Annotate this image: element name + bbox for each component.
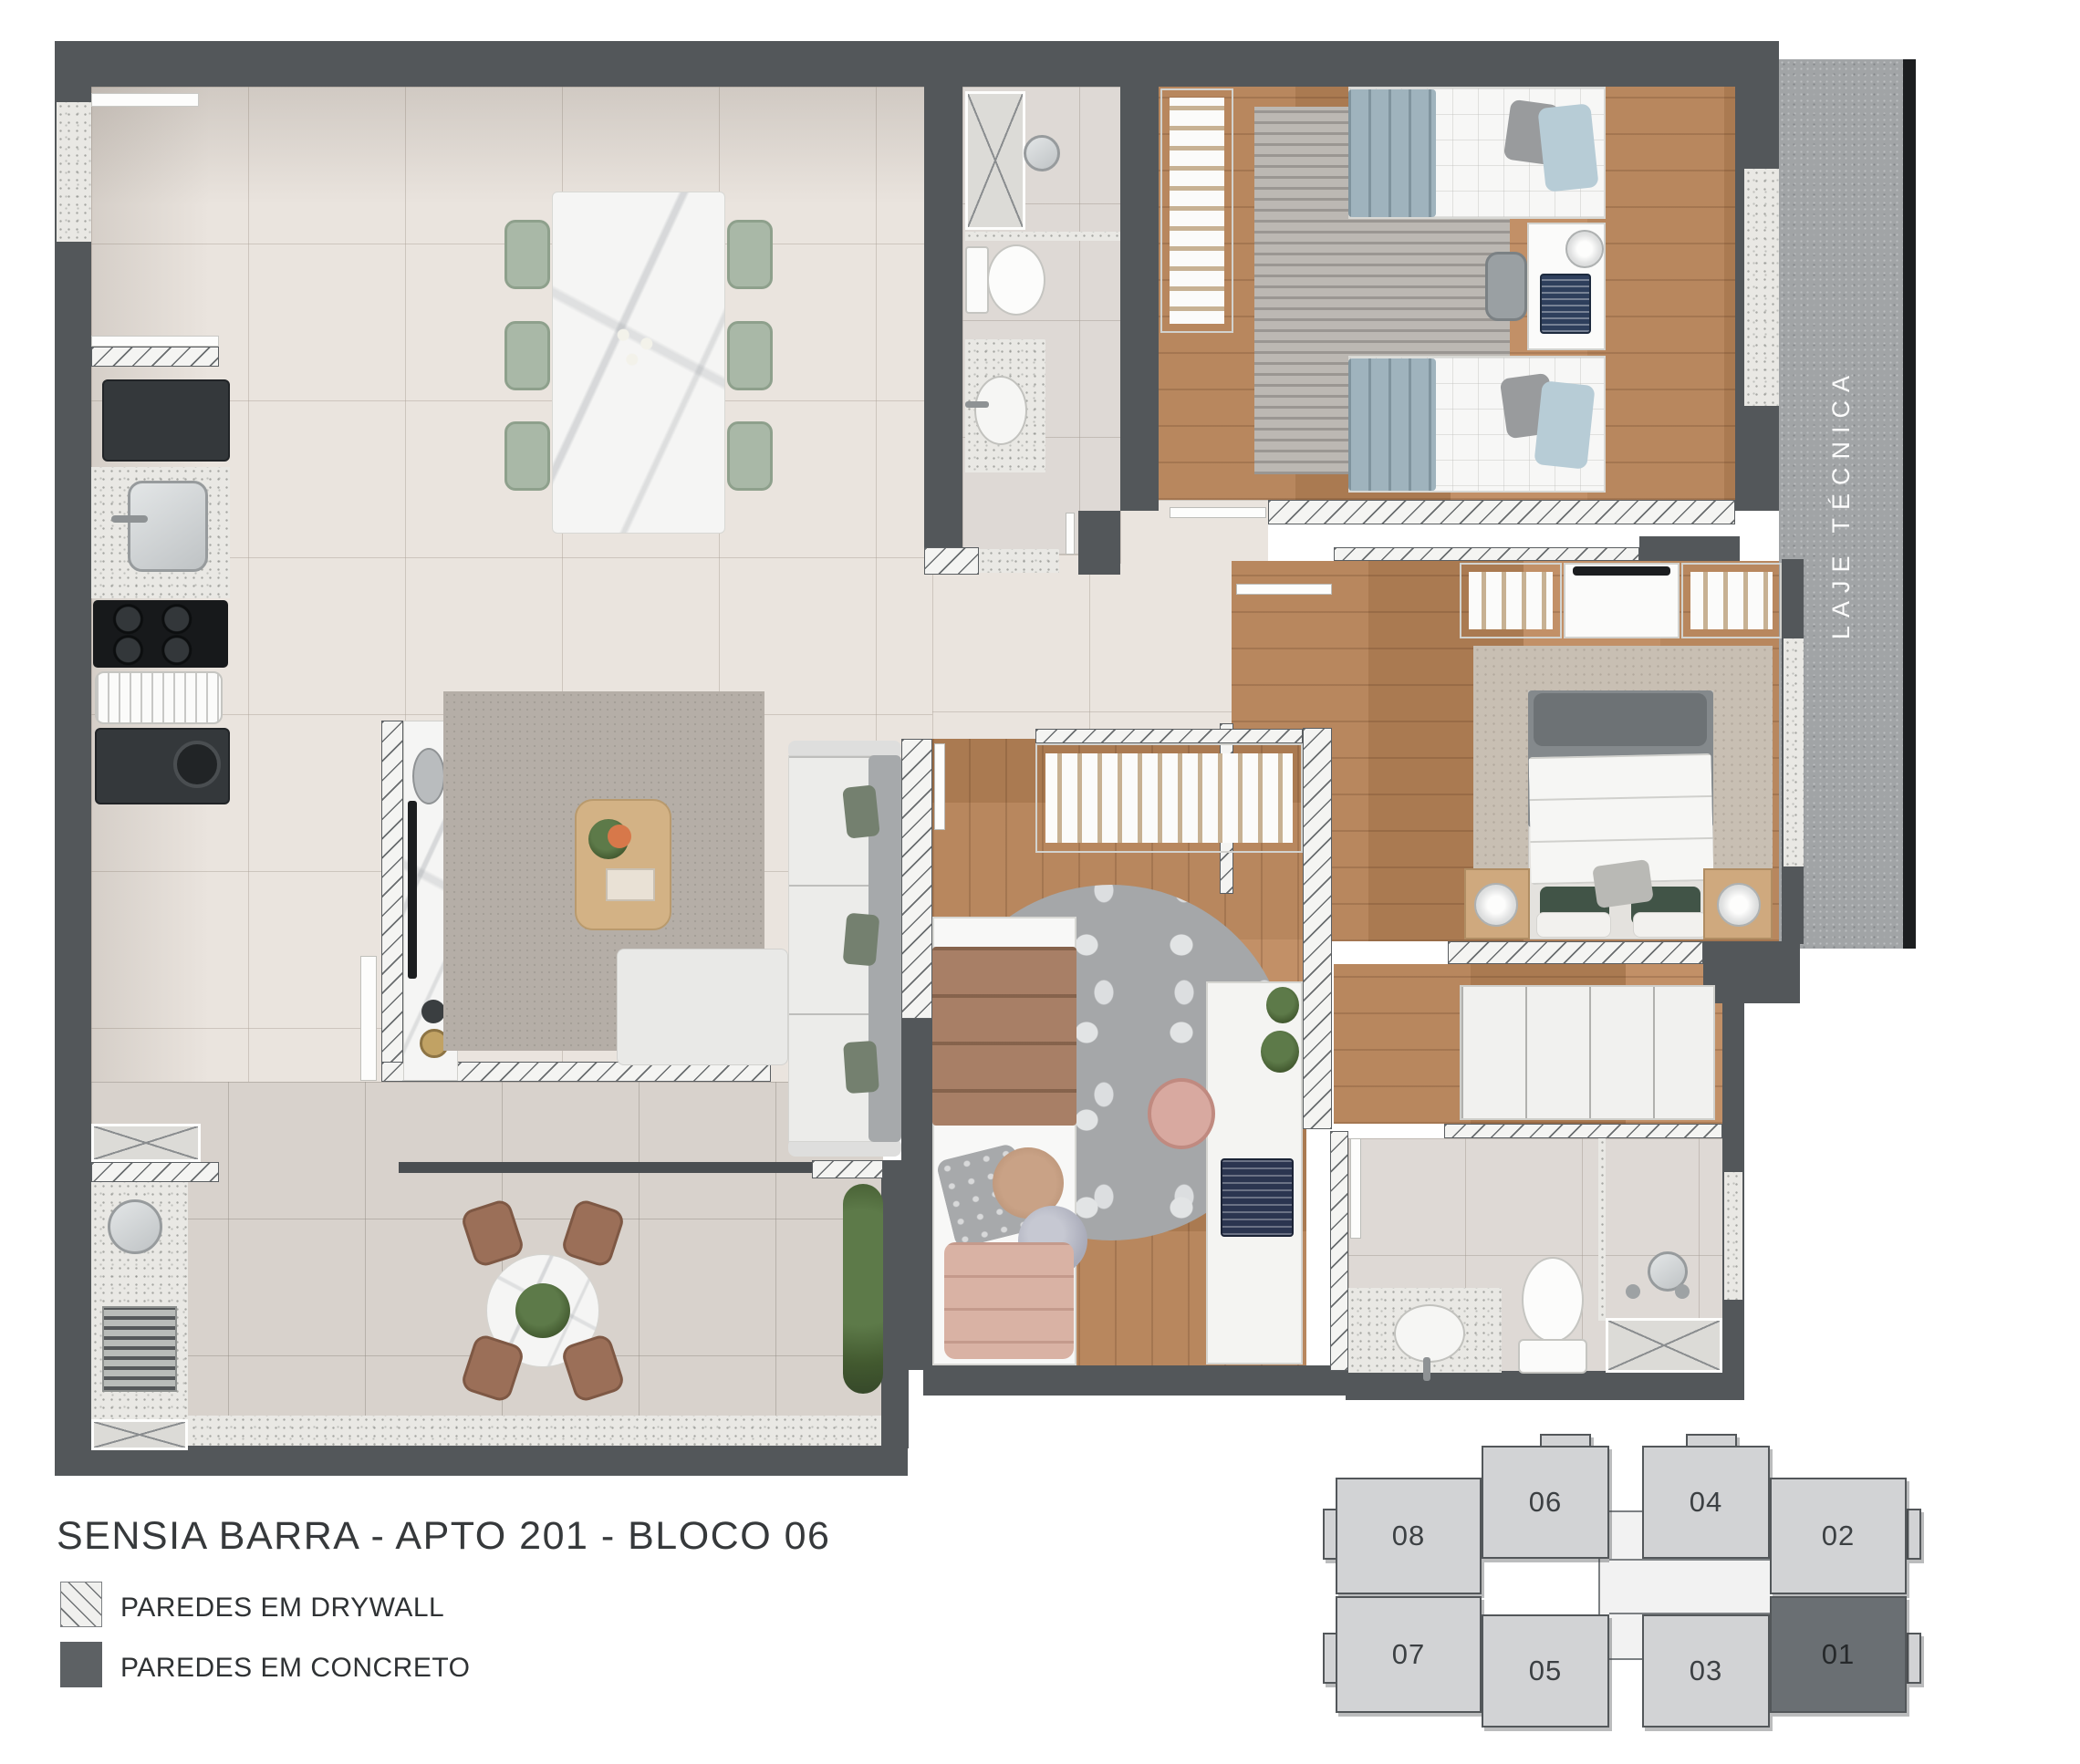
- keyplan-unit-08: 08: [1336, 1478, 1482, 1594]
- keyplan-unit-label: 07: [1392, 1638, 1425, 1671]
- bathroom1-door-leaf: [1066, 513, 1075, 555]
- kitchen-sink: [128, 481, 208, 572]
- wall-bathroom1-right: [1120, 87, 1159, 511]
- sofa-pillow: [843, 1041, 879, 1094]
- drywall-master-top: [1334, 547, 1639, 561]
- bedroom2-door-leaf: [1170, 507, 1266, 518]
- keyplan-unit-label: 08: [1392, 1520, 1425, 1552]
- wall-bathroom1-left: [924, 87, 962, 547]
- twin-bed-1-blanket: [1348, 89, 1436, 217]
- wall-bathroom2-bottom: [1346, 1371, 1744, 1400]
- dining-chair: [727, 321, 773, 390]
- dining-chair: [727, 220, 773, 289]
- kitchen-shelf: [91, 93, 199, 107]
- bathroom2-door-leaf: [1350, 1138, 1361, 1239]
- keyplan-unit-02: 02: [1770, 1478, 1907, 1594]
- toilet: [1522, 1257, 1584, 1343]
- gourmet-sink: [108, 1199, 162, 1254]
- drywall-master-bottom: [1448, 941, 1703, 964]
- dining-chair: [727, 421, 773, 491]
- coffee-table: [575, 799, 671, 930]
- coffee-table-flower: [608, 825, 631, 848]
- keyplan-unit-label: 02: [1822, 1520, 1855, 1552]
- floor-plan-canvas: LAJE TÉCNICA: [0, 0, 2080, 1764]
- kitchen-halfwall-cap: [91, 336, 219, 347]
- laje-tecnica-label: LAJE TÉCNICA: [1827, 368, 1856, 639]
- washer-door: [173, 741, 221, 788]
- laptop: [1540, 274, 1591, 334]
- keyplan-unit-03: 03: [1642, 1614, 1770, 1728]
- drywall-tv-wall: [381, 721, 403, 1081]
- legend-concrete-label: PAREDES EM CONCRETO: [120, 1653, 470, 1684]
- kids-blanket-pink: [944, 1242, 1074, 1359]
- shadow-top: [91, 87, 949, 205]
- master-pillow-silver: [1592, 859, 1654, 908]
- keyplan-unit-06: 06: [1482, 1446, 1609, 1559]
- shower-tap: [1626, 1284, 1640, 1299]
- coffee-table-book: [606, 868, 655, 901]
- drywall-gourmet: [91, 1162, 219, 1182]
- kids-desk-plant: [1266, 987, 1299, 1023]
- bathroom1-ledge: [965, 232, 1120, 241]
- drywall-kids-right: [1303, 728, 1332, 1129]
- cooktop: [93, 600, 228, 668]
- drywall-bedroom2-bottom: [1268, 500, 1735, 524]
- shower-tap: [1675, 1284, 1690, 1299]
- keyplan: 08 06 04 02 07 05 03 01: [1314, 1427, 1952, 1738]
- open-wardrobe-bedroom2: [1160, 88, 1233, 333]
- dining-chair: [504, 421, 550, 491]
- kids-desk-plant: [1261, 1031, 1299, 1073]
- drywall-bathroom2-top: [1444, 1124, 1722, 1138]
- dining-chair: [504, 321, 550, 390]
- legend-drywall-label: PAREDES EM DRYWALL: [120, 1593, 444, 1624]
- laje-edge-line: [1903, 59, 1916, 949]
- keyplan-unit-label: 04: [1690, 1486, 1722, 1519]
- wall-bath2-right-upper: [1722, 1003, 1744, 1140]
- window-master: [1784, 638, 1804, 866]
- kids-laptop: [1221, 1158, 1294, 1237]
- master-wardrobe-tv: [1573, 566, 1670, 576]
- grill: [102, 1306, 177, 1392]
- keyplan-unit-01-highlighted: 01: [1770, 1596, 1907, 1713]
- nightstand-lamp: [1717, 883, 1761, 927]
- bathroom2-sink: [1394, 1304, 1465, 1363]
- shower-glass-divider: [1598, 1138, 1606, 1321]
- wall-kids-left-lower: [901, 1019, 932, 1370]
- keyplan-unit-05: 05: [1482, 1614, 1609, 1728]
- drywall-bathroom1-bottom: [924, 547, 979, 575]
- window-bedroom2: [1744, 169, 1779, 406]
- wall-master-bottom-right: [1703, 941, 1800, 1003]
- master-door-leaf: [1236, 584, 1332, 595]
- tv-panel-decor-oval: [412, 748, 445, 804]
- balcony-table-plant: [515, 1283, 570, 1338]
- kids-bed-blanket: [932, 947, 1076, 1126]
- twin-bed-1-pillow-blue: [1537, 103, 1598, 192]
- drywall-kids-left: [901, 739, 932, 1019]
- master-pillow-white: [1633, 912, 1708, 938]
- nightstand-lamp: [1474, 883, 1518, 927]
- bathroom1-faucet: [965, 401, 989, 408]
- tv: [408, 801, 417, 979]
- keyplan-unit-04: 04: [1642, 1446, 1770, 1559]
- keyplan-unit-label: 06: [1529, 1486, 1562, 1519]
- floor-corridor: [932, 555, 1232, 746]
- drywall-kitchen-halfwall: [91, 347, 219, 367]
- wall-master-top-right: [1639, 536, 1740, 561]
- shower-stall: [965, 91, 1025, 230]
- concrete-swatch: [60, 1642, 102, 1687]
- master-pillow-white: [1536, 912, 1611, 938]
- keyplan-corridor-horizontal: [1609, 1559, 1770, 1614]
- balcony-granite-strip: [91, 1416, 883, 1448]
- toilet: [987, 244, 1045, 316]
- laundry-tank: [95, 671, 223, 724]
- wall-kids-bottom: [923, 1365, 1346, 1396]
- master-wardrobe-hangers-left: [1460, 563, 1562, 638]
- master-closet: [1460, 985, 1715, 1120]
- twin-bed-2-pillow-blue: [1534, 380, 1595, 470]
- toilet-tank: [965, 246, 989, 314]
- keyplan-notch: [1907, 1509, 1921, 1560]
- toilet-tank: [1518, 1339, 1587, 1374]
- dining-chair: [504, 220, 550, 289]
- planter-hedge: [843, 1184, 883, 1394]
- page-title: SENSIA BARRA - APTO 201 - BLOCO 06: [57, 1514, 830, 1559]
- master-wardrobe-hangers-right: [1681, 563, 1782, 638]
- bathroom2-faucet: [1423, 1357, 1430, 1381]
- desk-chair: [1485, 252, 1527, 321]
- living-railing: [360, 956, 377, 1081]
- keyplan-unit-label: 05: [1529, 1655, 1562, 1687]
- sofa-chaise: [617, 949, 788, 1065]
- wall-stub-corridor: [1078, 511, 1120, 575]
- dining-centerpiece-plant: [606, 317, 664, 376]
- bathroom1-door-threshold: [979, 549, 1059, 573]
- double-bed-top-pillow: [1534, 693, 1707, 746]
- kitchen-faucet: [111, 515, 148, 523]
- balcony-sliding-door-track: [399, 1162, 812, 1173]
- shower-box: [1606, 1318, 1722, 1373]
- kids-door-leaf: [934, 743, 945, 830]
- gourmet-base-cabinet: [91, 1124, 201, 1162]
- wall-top: [55, 41, 1779, 87]
- bathroom1-sink: [974, 376, 1027, 445]
- shower-head-icon: [1024, 135, 1060, 171]
- decor-plate-dark: [421, 1000, 445, 1023]
- window-kitchen: [57, 102, 91, 242]
- drywall-balcony-right: [812, 1160, 883, 1178]
- wall-left: [55, 41, 91, 1473]
- kids-chair: [1148, 1078, 1215, 1149]
- keyplan-unit-label: 01: [1822, 1638, 1855, 1671]
- keyplan-unit-07: 07: [1336, 1596, 1482, 1713]
- gourmet-base-cabinet: [91, 1419, 188, 1450]
- sofa-pillow: [843, 913, 880, 967]
- kids-wardrobe: [1035, 743, 1303, 853]
- drywall-kids-top: [1035, 729, 1303, 743]
- keyplan-notch: [1907, 1633, 1921, 1684]
- drywall-swatch: [60, 1582, 102, 1627]
- refrigerator: [102, 379, 230, 462]
- window-bathroom2: [1724, 1172, 1742, 1300]
- twin-bed-2-blanket: [1348, 358, 1436, 491]
- sofa-pillow: [842, 784, 880, 838]
- desk-lamp: [1565, 230, 1604, 268]
- drywall-bathroom2-left: [1330, 1131, 1348, 1371]
- keyplan-unit-label: 03: [1690, 1655, 1722, 1687]
